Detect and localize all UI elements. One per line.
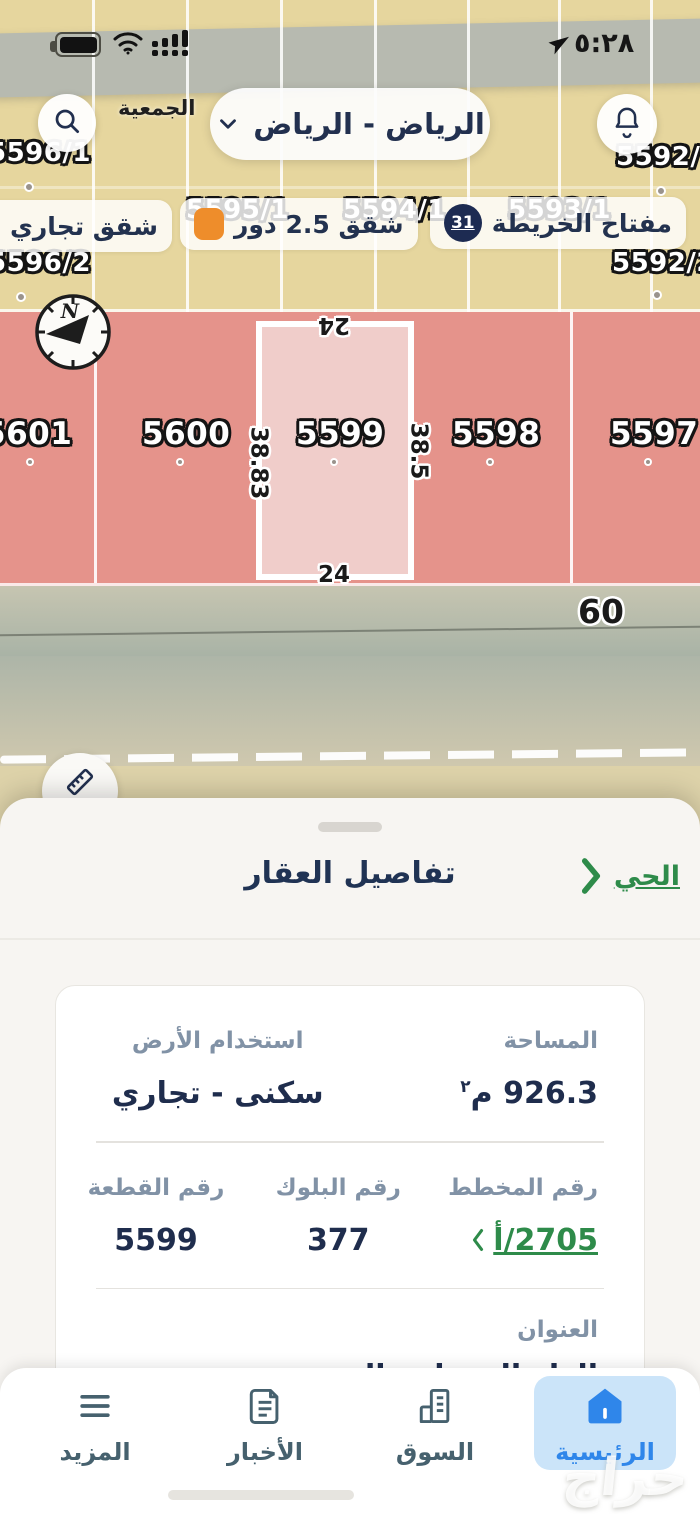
nav-label-more: المزيد (59, 1438, 130, 1466)
address-label: العنوان (96, 1317, 598, 1343)
plan-number-label: رقم المخطط (421, 1175, 598, 1201)
dimension-right: 38.5 (405, 423, 431, 480)
block-number-label: رقم البلوك (276, 1175, 401, 1201)
nav-tab-market[interactable]: السوق (350, 1376, 520, 1470)
district-link[interactable]: الحي (578, 856, 680, 896)
nav-label-news: الأخبار (227, 1438, 303, 1466)
chevron-right-icon (578, 856, 604, 896)
region-selector[interactable]: الرياض - الرياض (210, 88, 490, 160)
sheet-divider (0, 938, 700, 940)
notifications-button[interactable] (597, 94, 657, 154)
plot-dot (486, 458, 494, 466)
home-indicator (168, 1490, 354, 1500)
area-label: المساحة (379, 1028, 598, 1054)
legend-map-key-chip[interactable]: مفتاح الخريطة 31 (430, 197, 686, 249)
dimension-left: 38.83 (245, 427, 271, 500)
home-icon (583, 1382, 627, 1430)
plot-label-5599: 5599 (296, 416, 384, 452)
map-place-label: الجمعية (118, 96, 195, 120)
parcel-dot (24, 182, 34, 192)
status-time: ٥:٢٨ (574, 28, 634, 59)
land-use-value: سكنى - تجاري (112, 1076, 324, 1111)
plot-dot (330, 458, 338, 466)
orange-swatch-icon (194, 208, 224, 240)
wifi-icon (112, 30, 144, 60)
nav-tab-more[interactable]: المزيد (10, 1376, 180, 1470)
legend-floors-label: شقق 2.5 دور (234, 210, 404, 239)
haraj-watermark: حراج (560, 1448, 691, 1508)
parcel-label: 5596/2 (0, 248, 91, 278)
legend-floors-chip: شقق 2.5 دور (180, 198, 418, 250)
plot-label-5597: 5597 (610, 416, 698, 452)
road-width-label: 60 (578, 592, 624, 631)
dimension-top: 24 (318, 312, 350, 338)
search-button[interactable] (38, 94, 96, 152)
sheet-drag-handle[interactable] (318, 822, 382, 832)
svg-text:N: N (60, 299, 80, 323)
legend-commercial-label: شقق تجاري (10, 212, 158, 241)
location-arrow-icon (545, 32, 571, 62)
map-grid-line (0, 186, 700, 189)
district-link-label[interactable]: الحي (614, 861, 680, 892)
compass-icon: N (33, 292, 113, 376)
plot-label-5598: 5598 (452, 416, 540, 452)
cellular-signal-icon (152, 30, 188, 56)
map-key-count-badge: 31 (444, 204, 482, 242)
parcel-dot (652, 290, 662, 300)
piece-number-value: 5599 (114, 1223, 198, 1258)
map-key-label: مفتاح الخريطة (492, 209, 672, 238)
parcel-separator (570, 312, 573, 583)
plot-dot (176, 458, 184, 466)
plot-dot (644, 458, 652, 466)
chevron-down-icon (215, 111, 241, 137)
region-selector-label: الرياض - الرياض (253, 107, 485, 141)
newspaper-icon (243, 1382, 287, 1430)
nav-label-market: السوق (396, 1438, 474, 1466)
search-icon (52, 106, 82, 140)
dimension-bottom: 24 (318, 562, 350, 588)
nav-tab-news[interactable]: الأخبار (180, 1376, 350, 1470)
block-number-value: 377 (307, 1223, 370, 1258)
battery-icon (55, 32, 101, 57)
plot-label-5601: 5601 (0, 416, 72, 452)
legend-commercial-chip: شقق تجاري (0, 200, 172, 252)
plot-dot (26, 458, 34, 466)
menu-icon (73, 1382, 117, 1430)
plot-label-5600: 5600 (142, 416, 230, 452)
parcel-dot (656, 186, 666, 196)
app-screen: 5596/1 5592/1 5595/1 5594/1 5593/1 5596/… (0, 0, 700, 1514)
plan-number-link[interactable]: 2705/أ (421, 1223, 598, 1258)
piece-number-label: رقم القطعة (88, 1175, 225, 1201)
parcel-dot (16, 292, 26, 302)
chevron-left-icon (469, 1227, 487, 1253)
bell-icon (611, 105, 643, 143)
status-bar: ٥:٢٨ (0, 24, 700, 68)
land-use-label: استخدام الأرض (132, 1028, 304, 1054)
parcel-label: 5592/2 (612, 248, 700, 278)
area-value: 926.3 م٢ (379, 1076, 598, 1111)
buildings-icon (413, 1382, 457, 1430)
